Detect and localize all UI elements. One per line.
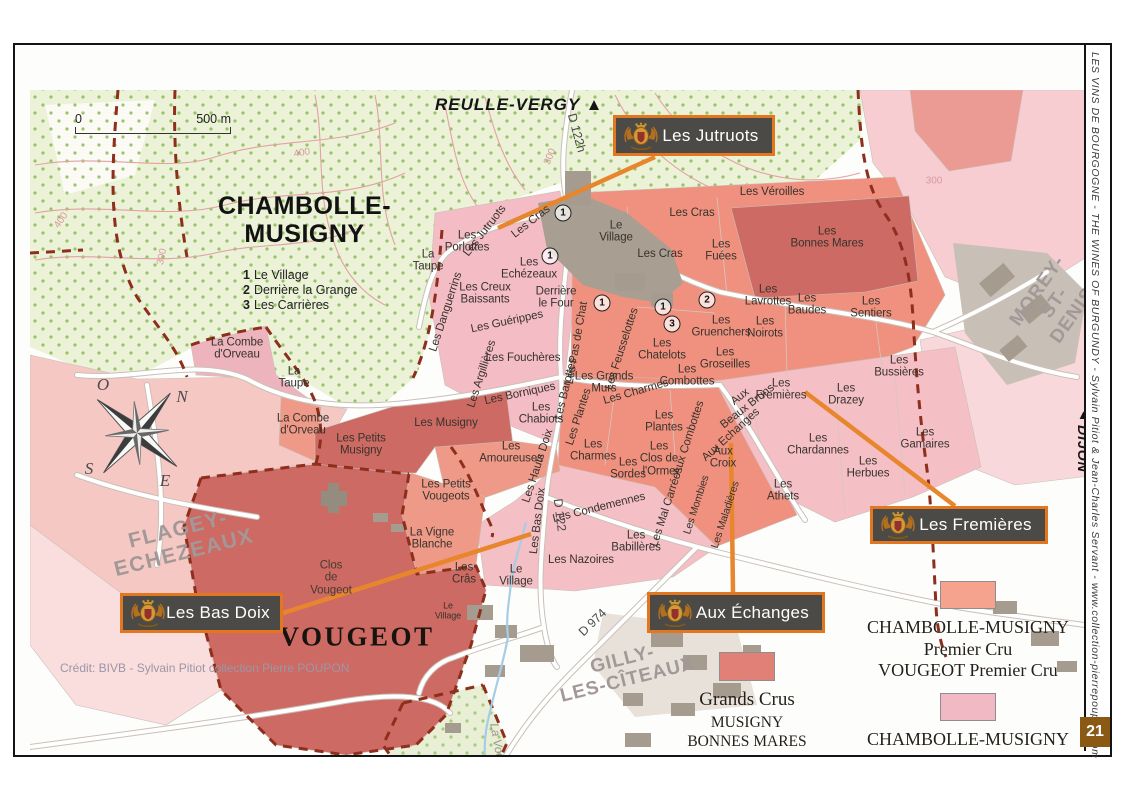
- scale-bar: 0 500 m: [75, 112, 231, 134]
- callout-label: Les Fremières: [916, 515, 1045, 535]
- legend-grands-crus-swatch: [719, 652, 775, 681]
- commune-title: CHAMBOLLE- MUSIGNY: [207, 193, 402, 248]
- commune-title-line2: MUSIGNY: [207, 221, 402, 249]
- wine-crest-icon: [657, 598, 693, 628]
- credit-text: Crédit: BIVB - Sylvain Pitiot collection…: [60, 661, 349, 675]
- wine-crest-icon: [880, 510, 916, 540]
- circled-number: 2: [699, 292, 716, 309]
- legend-grands-crus-line: BONNES MARES: [667, 732, 827, 751]
- callout-les-bas-doix[interactable]: Les Bas Doix: [120, 593, 283, 633]
- legend-grands-crus-line: CLOS DE VOUGEOT: [667, 752, 827, 757]
- scale-line: [75, 127, 231, 134]
- legend-village-swatch: [940, 693, 996, 721]
- legend-grands-crus-title: Grands Crus: [667, 689, 827, 711]
- compass-letter: S: [85, 459, 94, 479]
- note-row: 2Derrière la Grange: [243, 283, 403, 298]
- legend-village-line: CHAMBOLLE-MUSIGNY: [863, 729, 1073, 751]
- map-panel: 0 500 m CHAMBOLLE- MUSIGNY 1Le Village 2…: [13, 43, 1112, 757]
- circled-number: 1: [655, 299, 672, 316]
- commune-title-notes: 1Le Village 2Derrière la Grange 3Les Car…: [243, 268, 403, 312]
- legend-premier-cru-line: VOUGEOT Premier Cru: [863, 660, 1073, 682]
- callout-les-fremieres[interactable]: Les Fremières: [870, 506, 1048, 544]
- circled-number: 3: [664, 316, 681, 333]
- scale-zero: 0: [75, 112, 82, 126]
- callout-label: Les Jutruots: [659, 126, 772, 146]
- direction-reulle-vergy: REULLE-VERGY ▲: [435, 95, 603, 115]
- legend-grands-crus-line: MUSIGNY: [667, 713, 827, 732]
- circled-number: 1: [594, 295, 611, 312]
- circled-number: 1: [555, 205, 572, 222]
- compass-letter: N: [176, 387, 187, 407]
- page-number-badge: 21: [1080, 717, 1110, 747]
- legend-village-line: VOUGEOT: [863, 751, 1073, 757]
- commune-title-line1: CHAMBOLLE-: [207, 193, 402, 221]
- sidebar-vertical-text: LES VINS DE BOURGOGNE - THE WINES OF BUR…: [1089, 52, 1101, 758]
- legend-grands-crus: Grands Crus MUSIGNY BONNES MARES CLOS DE…: [667, 652, 827, 757]
- callout-aux-echanges[interactable]: Aux Échanges: [647, 592, 825, 633]
- legend-premier-cru-line: CHAMBOLLE-MUSIGNY: [863, 617, 1073, 639]
- callout-label: Les Bas Doix: [166, 603, 280, 623]
- legend-village: CHAMBOLLE-MUSIGNY VOUGEOT: [863, 693, 1073, 757]
- callout-label: Aux Échanges: [693, 603, 822, 623]
- compass-letter: O: [97, 375, 109, 395]
- wine-crest-icon: [130, 598, 166, 628]
- legend-premier-cru: CHAMBOLLE-MUSIGNY Premier Cru VOUGEOT Pr…: [863, 581, 1073, 682]
- circled-number: 1: [542, 248, 559, 265]
- compass-letter: E: [160, 471, 170, 491]
- page: 0 500 m CHAMBOLLE- MUSIGNY 1Le Village 2…: [0, 0, 1123, 794]
- note-row: 3Les Carrières: [243, 298, 403, 313]
- wine-crest-icon: [623, 121, 659, 151]
- note-row: 1Le Village: [243, 268, 403, 283]
- callout-les-jutruots[interactable]: Les Jutruots: [613, 115, 775, 156]
- callout-leader-line: [731, 443, 733, 592]
- legend-premier-cru-swatch: [940, 581, 996, 609]
- legend-premier-cru-line: Premier Cru: [863, 639, 1073, 661]
- scale-end: 500 m: [196, 112, 231, 126]
